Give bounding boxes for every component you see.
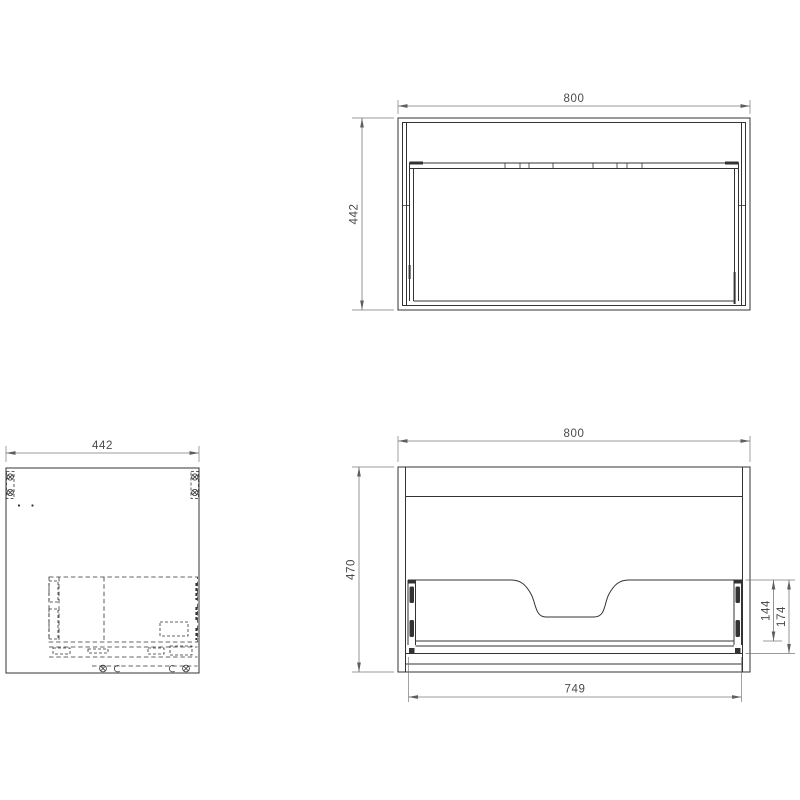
clip-icon xyxy=(114,666,119,672)
side-depth-label: 442 xyxy=(92,440,113,452)
side-drawer-hidden xyxy=(49,577,198,666)
drawer-slide-left xyxy=(408,580,416,654)
screw-icon xyxy=(192,474,198,480)
rear-width-label: 800 xyxy=(564,428,585,440)
rear-height-dimension: 470 xyxy=(346,467,395,672)
foot-screw-icon xyxy=(183,665,190,672)
plan-width-label: 800 xyxy=(564,93,585,105)
plan-drawer-front-joints xyxy=(505,163,642,169)
screw-icon xyxy=(192,489,198,495)
plan-slide-mark-left xyxy=(409,265,411,279)
plan-slide-mark-right xyxy=(734,272,736,304)
plan-front-bracket-left xyxy=(410,162,424,165)
rear-width-dimension: 800 xyxy=(398,428,750,462)
plan-depth-label: 442 xyxy=(349,204,361,225)
rear-drawer-assembly-height-label: 174 xyxy=(776,606,788,627)
rear-drawer-back-height-label: 144 xyxy=(761,600,773,621)
plan-front-bracket-right xyxy=(725,162,739,165)
side-view: 442 xyxy=(6,440,199,673)
rear-drawer xyxy=(406,580,743,654)
side-screw-group-right xyxy=(191,472,199,499)
plan-depth-dimension: 442 xyxy=(349,118,395,310)
side-screw-group-left xyxy=(7,472,15,499)
technical-drawing: 800 442 xyxy=(0,0,800,800)
rear-view: 800 470 xyxy=(346,428,796,702)
plan-drawer-box xyxy=(409,162,739,305)
screw-icon xyxy=(7,489,13,495)
plan-view: 800 442 xyxy=(349,93,751,310)
clip-icon xyxy=(169,666,174,672)
rear-height-label: 470 xyxy=(346,559,358,580)
screw-icon xyxy=(7,474,13,480)
drawer-slide-right xyxy=(734,580,742,654)
drawer-back-cutout xyxy=(408,580,742,617)
plan-carcass xyxy=(398,118,750,310)
side-pilot-dot xyxy=(18,504,20,506)
rear-drawer-width-label: 749 xyxy=(565,684,586,696)
side-pilot-dot xyxy=(31,504,33,506)
plan-width-dimension: 800 xyxy=(398,93,750,114)
side-depth-dimension: 442 xyxy=(6,440,199,462)
